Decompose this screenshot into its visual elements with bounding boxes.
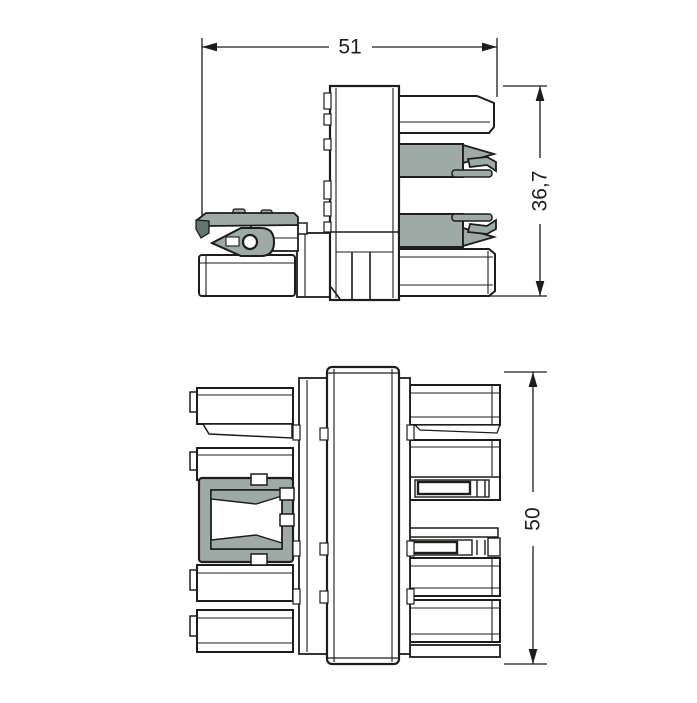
- technical-drawing-page: 51 36,7: [0, 0, 697, 703]
- connector-technical-drawing: 51 36,7: [0, 0, 697, 703]
- dimension-label-height: 36,7: [529, 171, 552, 212]
- terminal-slat: [410, 440, 500, 500]
- arrowhead-up: [529, 372, 538, 387]
- latch-hook: [196, 220, 209, 238]
- terminal-slat: [190, 388, 293, 438]
- upper-contact-pin: [399, 96, 494, 133]
- terminal-slat: [190, 565, 293, 601]
- left-mounting-strip: [293, 378, 327, 654]
- plug-housing-body: [324, 86, 399, 300]
- arrowhead-left: [202, 43, 217, 52]
- upper-locking-pin: [399, 144, 496, 177]
- coding-window: [413, 542, 457, 553]
- right-terminal-slats: [406, 385, 500, 657]
- terminal-slat: [410, 600, 500, 642]
- terminal-slat: [190, 448, 293, 480]
- arrowhead-down: [529, 649, 538, 664]
- dimension-overall-depth: 50: [504, 372, 547, 664]
- latch-pivot-hole: [243, 235, 257, 249]
- left-terminal-block: [199, 255, 295, 296]
- terminal-slat: [410, 385, 500, 433]
- side-view: 51 36,7: [196, 36, 552, 301]
- release-latch: [212, 228, 274, 256]
- arrowhead-right: [482, 43, 497, 52]
- coding-window: [418, 482, 470, 494]
- arrowhead-up: [536, 86, 545, 101]
- pin-barb: [468, 157, 496, 171]
- pin-barb: [468, 220, 496, 234]
- lower-locking-pin: [399, 214, 496, 247]
- terminal-slat: [190, 610, 293, 652]
- terminal-slat: [410, 645, 500, 657]
- central-housing-body: [320, 367, 399, 664]
- lower-contact-block: [399, 249, 495, 296]
- dimension-label-depth: 50: [522, 507, 545, 530]
- top-view: 50: [190, 367, 547, 664]
- dimension-label-width: 51: [338, 36, 361, 59]
- terminal-slat: [406, 528, 500, 556]
- terminal-slat: [410, 558, 500, 596]
- locking-frame: [199, 474, 294, 565]
- coupling-piece: [297, 223, 331, 297]
- arrowhead-down: [536, 281, 545, 296]
